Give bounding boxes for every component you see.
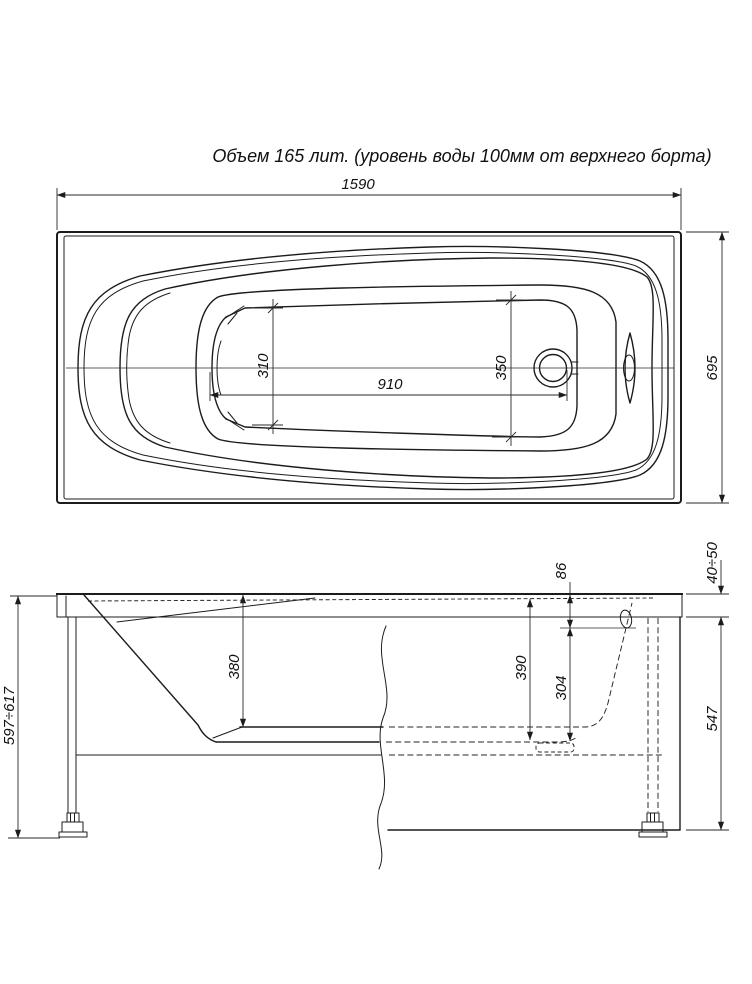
dim-overflow-to-bottom: 304: [553, 628, 570, 741]
apron-panel: [388, 617, 680, 830]
dim-text-547: 547: [704, 706, 721, 732]
dim-apron-height: 547: [686, 617, 729, 830]
frame-left-leg: [59, 617, 87, 837]
overflow-hole: [619, 609, 633, 629]
dim-overall-width: 695: [686, 232, 729, 503]
rim-bar: [57, 594, 682, 622]
dim-top-to-overflow: 86: [553, 562, 570, 628]
dim-depth-foot: 380: [226, 595, 243, 727]
dim-text-695: 695: [704, 355, 721, 381]
dim-overall-length: 1590: [57, 176, 681, 230]
dim-text-350: 350: [493, 355, 510, 381]
dim-text-390: 390: [513, 655, 530, 681]
drawing-title: Объем 165 лит. (уровень воды 100мм от ве…: [212, 146, 711, 166]
dim-text-40-50: 40÷50: [704, 542, 721, 584]
break-line: [378, 626, 387, 869]
drawing-canvas: Объем 165 лит. (уровень воды 100мм от ве…: [0, 0, 752, 984]
left-foot-adjuster: [67, 813, 79, 822]
dim-text-380: 380: [226, 654, 243, 680]
left-foot-plate: [59, 832, 87, 837]
dim-text-304: 304: [553, 675, 570, 700]
dim-text-86: 86: [553, 562, 570, 579]
dim-bottom-width-foot: 310: [252, 299, 283, 434]
hidden-drain-fitting: [536, 743, 574, 752]
dim-text-1590: 1590: [341, 176, 375, 193]
left-foot-nut: [62, 822, 83, 832]
dim-depth-head: 390: [513, 599, 530, 740]
tub-rim-outer-line: [64, 236, 674, 499]
dim-rim-height: 40÷50: [686, 542, 729, 617]
tub-bottom-shelf: [213, 727, 383, 742]
rim-inner-slope: [117, 598, 315, 622]
dim-text-597-617: 597÷617: [1, 686, 18, 745]
dim-overall-height: 597÷617: [1, 596, 60, 838]
dim-bottom-width-head: 350: [492, 291, 524, 446]
dim-text-910: 910: [377, 376, 403, 393]
dim-text-310: 310: [255, 353, 272, 379]
side-view: 597÷617 380 390 86: [1, 542, 729, 869]
frame-right-foot: [639, 813, 667, 837]
hidden-tub-lines: [386, 603, 664, 812]
bathtub-technical-drawing: Объем 165 лит. (уровень воды 100мм от ве…: [0, 0, 752, 984]
top-view: 1590 695 910 310: [57, 176, 729, 503]
